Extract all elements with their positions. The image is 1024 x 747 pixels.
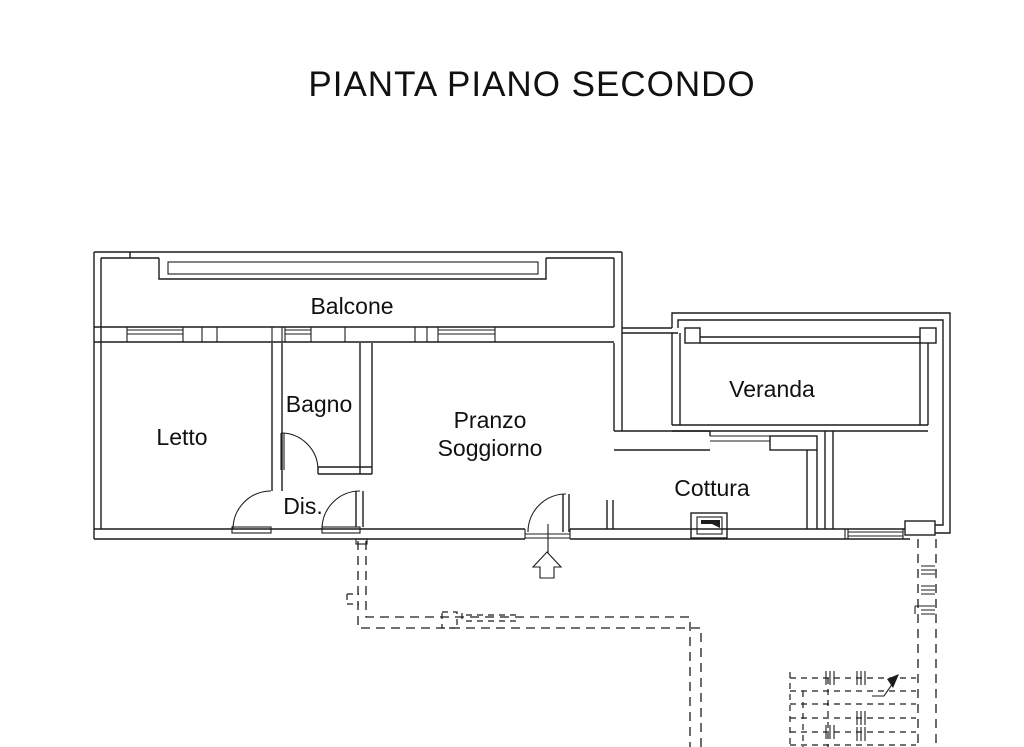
floor-plan-canvas: PIANTA PIANO SECONDO Balcone Letto Bagno…	[0, 0, 1024, 747]
room-label-dis: Dis.	[283, 493, 323, 519]
room-label-letto: Letto	[156, 424, 207, 450]
veranda-railing	[700, 337, 920, 343]
room-label-pranzo: Pranzo	[454, 407, 527, 433]
lower-floor-dashed-outline	[347, 539, 936, 747]
room-label-bagno: Bagno	[286, 391, 353, 417]
room-label-soggiorno: Soggiorno	[438, 435, 543, 461]
railing-post-left	[685, 328, 700, 343]
stairs-direction-arrow	[872, 674, 899, 696]
veranda-structure	[622, 313, 950, 533]
room-label-veranda: Veranda	[729, 376, 815, 402]
entrance-direction-arrow	[533, 552, 561, 578]
kitchen-appliance-box	[691, 513, 727, 538]
floor-plan-page: PIANTA PIANO SECONDO Balcone Letto Bagno…	[0, 0, 1024, 747]
room-label-balcone: Balcone	[310, 293, 393, 319]
railing-post-right	[920, 328, 936, 343]
room-label-cottura: Cottura	[674, 475, 750, 501]
stairs-below-dashed	[790, 671, 916, 747]
interior-walls	[272, 343, 928, 529]
page-title: PIANTA PIANO SECONDO	[308, 65, 755, 104]
